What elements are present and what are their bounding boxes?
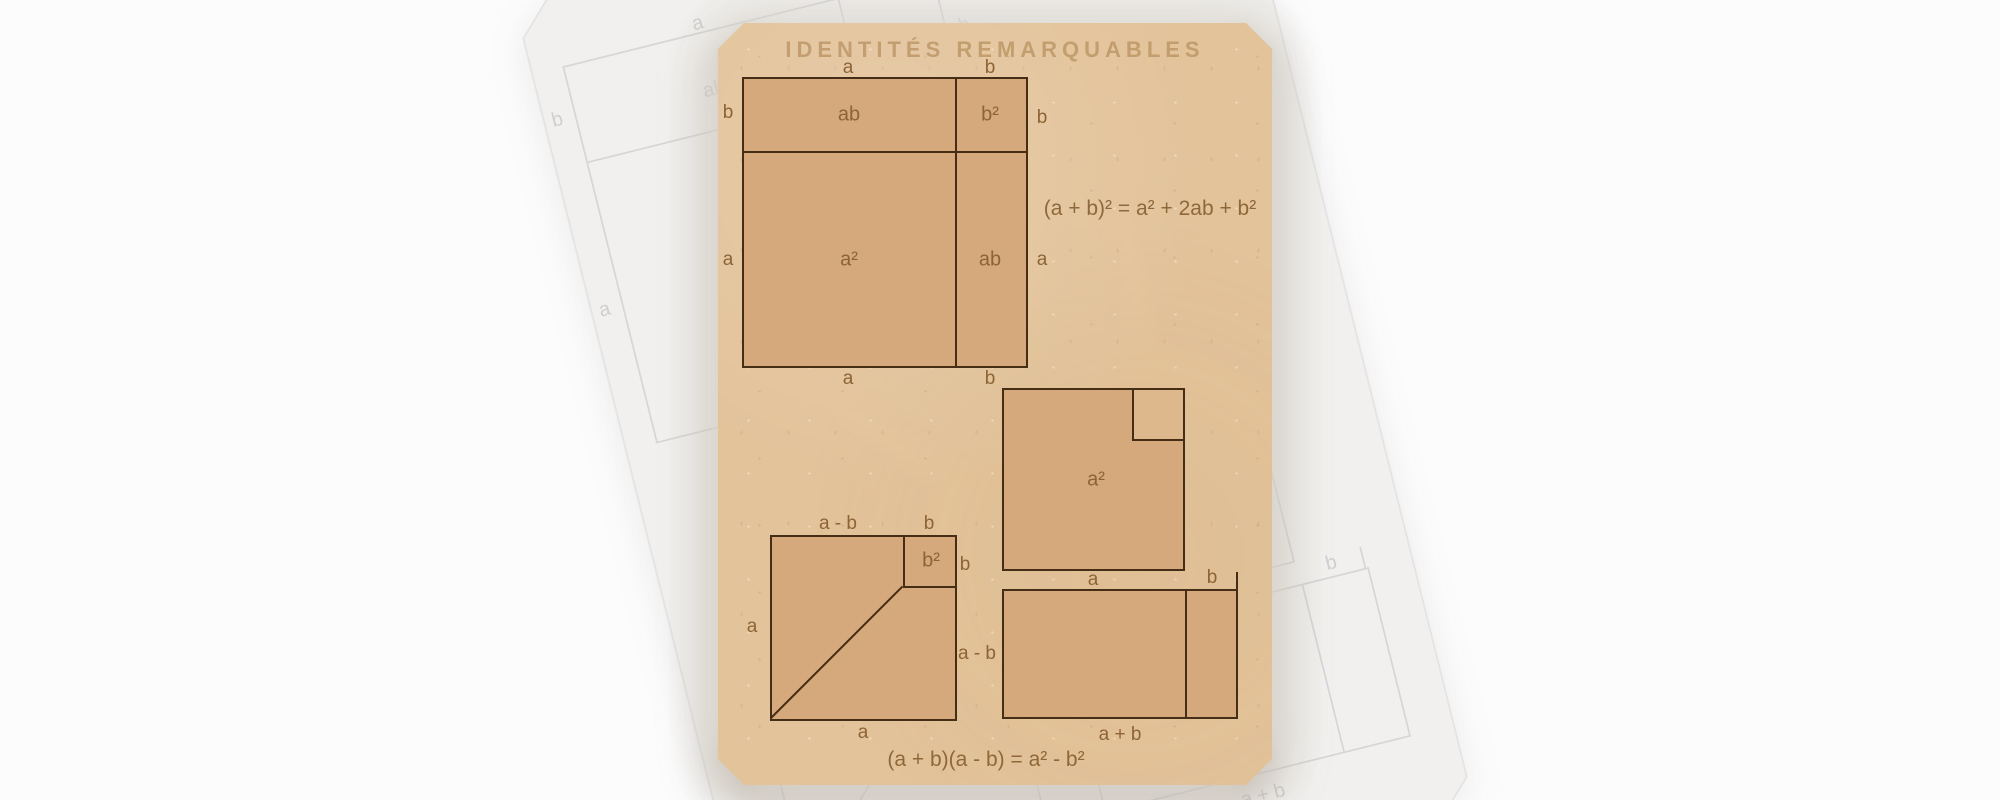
formula-difference: (a + b)(a - b) = a² - b² <box>887 748 1084 772</box>
d1-cell-a2: a² <box>840 249 858 272</box>
d3-b2-corner: b² <box>903 537 955 588</box>
d1-cell-ab-top: ab <box>838 104 860 127</box>
board-shadow-wrap: IDENTITÉS REMARQUABLES ab b² a² ab a b b… <box>718 23 1272 785</box>
square-sum-diagram: ab b² a² ab <box>742 77 1028 368</box>
d2-cell-a2: a² <box>1087 469 1105 492</box>
d4-left-label: a - b <box>958 643 996 665</box>
d1-edge-left-b: b <box>723 102 734 124</box>
d4-divider <box>1185 591 1187 717</box>
d3-bottom-a-label: a <box>858 722 869 744</box>
a2-square-diagram: a² <box>1002 388 1185 571</box>
product-rectangle-diagram <box>1002 589 1238 719</box>
d2-below-a: a <box>1088 569 1099 591</box>
d1-cell-ab-right: ab <box>979 249 1001 272</box>
d2-corner-notch <box>1132 390 1183 441</box>
formula-square-sum: (a + b)² = a² + 2ab + b² <box>1044 197 1256 221</box>
d2-right-tick <box>1236 572 1238 589</box>
d3-left-a-label: a <box>747 616 758 638</box>
a-minus-b-diagram: b² <box>770 535 957 721</box>
d1-edge-bottom-a: a <box>843 368 854 390</box>
d1-edge-top-b: b <box>985 57 996 79</box>
d3-top-left-label: a - b <box>819 513 857 535</box>
d1-edge-bottom-b: b <box>985 368 996 390</box>
d4-bottom-label: a + b <box>1099 724 1142 746</box>
d1-edge-right-b: b <box>1037 107 1048 129</box>
d2-below-b: b <box>1207 567 1218 589</box>
d3-top-b-label: b <box>924 513 935 535</box>
d3-corner-b2: b² <box>922 550 940 573</box>
d1-edge-top-a: a <box>843 57 854 79</box>
d1-edge-right-a: a <box>1037 249 1048 271</box>
d1-horizontal-divider <box>744 151 1026 153</box>
d1-edge-left-a: a <box>723 249 734 271</box>
photo-stage: a b b a b a a b ab b² a² ab a² a b a - b… <box>0 0 2000 800</box>
d1-vertical-divider <box>955 79 957 366</box>
d3-right-b-label: b <box>960 554 971 576</box>
d1-cell-b2: b² <box>981 104 999 127</box>
identities-board: IDENTITÉS REMARQUABLES ab b² a² ab a b b… <box>718 23 1272 785</box>
d3-diagonal-line <box>770 586 903 719</box>
